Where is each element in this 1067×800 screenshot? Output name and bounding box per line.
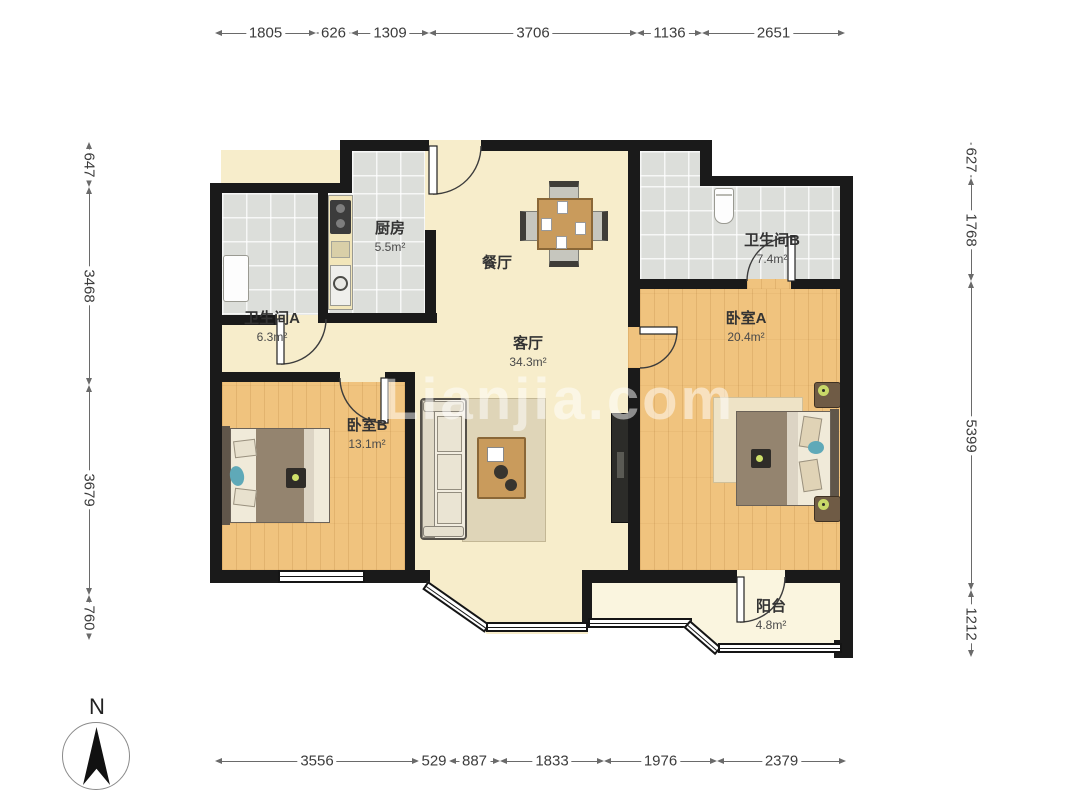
arrow-right-icon — [422, 30, 429, 36]
arrow-right-icon — [597, 758, 604, 764]
wall-segment — [628, 368, 640, 570]
arrow-left-icon — [215, 30, 222, 36]
bed-b-pillow — [233, 439, 257, 459]
arrow-right-icon — [695, 30, 702, 36]
arrow-right-icon — [838, 30, 845, 36]
arrow-left-icon — [702, 30, 709, 36]
bathroom-b-door-threshold — [747, 279, 791, 289]
wall-segment — [700, 176, 853, 186]
dining-chair — [520, 211, 538, 241]
sofa-armrest — [423, 401, 464, 412]
wall-segment — [628, 279, 747, 289]
room-label-bedroom-b: 卧室B 13.1m² — [347, 415, 388, 453]
kitchen-shelf — [331, 241, 350, 258]
bed-a-tray-lamp — [756, 455, 763, 462]
arrow-up-icon — [86, 187, 92, 194]
coffee-table-tray — [487, 447, 504, 462]
room-name: 卫生间A — [244, 308, 300, 329]
room-label-kitchen: 厨房 5.5m² — [375, 218, 406, 256]
room-area: 6.3m² — [244, 329, 300, 346]
dimension: 1136 — [637, 24, 702, 42]
dimension: 626 — [316, 24, 351, 42]
arrow-left-icon — [717, 758, 724, 764]
wall-segment — [785, 570, 853, 583]
wall-segment — [405, 372, 415, 583]
arrow-right-icon — [309, 30, 316, 36]
arrow-up-icon — [968, 178, 974, 185]
arrow-down-icon — [86, 633, 92, 640]
bedroom-a-door-threshold — [628, 327, 640, 368]
entry-threshold-floor — [429, 140, 481, 152]
wall-segment — [340, 140, 429, 151]
room-label-balcony: 阳台 4.8m² — [756, 596, 787, 634]
wall-segment — [318, 313, 437, 323]
sofa-cushion — [437, 454, 462, 490]
dimension: 5399 — [962, 281, 980, 590]
arrow-up-icon — [86, 142, 92, 149]
dining-plate — [557, 201, 568, 214]
arrow-right-icon — [493, 758, 500, 764]
bed-a-cushion — [808, 441, 824, 454]
dimension: 3706 — [429, 24, 637, 42]
dimension: 627 — [962, 142, 980, 178]
compass-north-label: N — [80, 694, 114, 720]
coffee-table-cup — [505, 479, 517, 491]
floor-plan: Lianjia.com 厨房 5.5m² 卫生间A 6.3m² 卫生间B 7.4… — [0, 0, 1067, 800]
wall-segment — [481, 140, 712, 151]
dimension: 1768 — [962, 178, 980, 281]
arrow-down-icon — [968, 274, 974, 281]
dining-chair — [549, 247, 579, 267]
arrow-left-icon — [429, 30, 436, 36]
wall-segment — [425, 230, 436, 323]
sofa-armrest — [423, 526, 464, 537]
arrow-right-icon — [710, 758, 717, 764]
sofa-cushion — [437, 492, 462, 524]
arrow-down-icon — [86, 588, 92, 595]
kitchen-floor — [352, 151, 425, 193]
room-name: 厨房 — [375, 218, 406, 239]
room-label-bedroom-a: 卧室A 20.4m² — [726, 308, 767, 346]
washing-machine — [223, 255, 249, 302]
bed-a-blanket-fold — [787, 412, 798, 505]
dimension: 1309 — [351, 24, 429, 42]
wall-segment — [318, 183, 328, 323]
dimension: 887 — [449, 752, 500, 770]
cooktop-burner — [336, 219, 345, 228]
room-name: 餐厅 — [482, 253, 512, 274]
dimension: 529 — [419, 752, 449, 770]
arrow-down-icon — [86, 378, 92, 385]
room-name: 阳台 — [756, 596, 787, 617]
dimension: 760 — [80, 595, 98, 640]
room-label-living: 客厅 34.3m² — [509, 333, 546, 371]
tv-screen — [617, 452, 624, 478]
room-name: 卧室B — [347, 415, 388, 436]
balcony-floor — [588, 583, 840, 648]
wall-segment — [840, 176, 853, 658]
room-area: 4.8m² — [756, 617, 787, 634]
arrow-left-icon — [351, 30, 358, 36]
room-label-bathroom-b: 卫生间B 7.4m² — [744, 230, 800, 268]
wall-segment — [210, 183, 222, 583]
balcony-window — [588, 618, 692, 628]
kitchen-sink — [333, 276, 348, 291]
room-name: 卫生间B — [744, 230, 800, 251]
arrow-right-icon — [630, 30, 637, 36]
dimension: 3679 — [80, 385, 98, 595]
arrow-left-icon — [500, 758, 507, 764]
bed-a-headboard — [830, 409, 839, 508]
arrow-up-icon — [86, 385, 92, 392]
dining-plate — [575, 222, 586, 235]
room-area: 5.5m² — [375, 239, 406, 256]
dimension: 2651 — [702, 24, 845, 42]
dimension: 1212 — [962, 590, 980, 657]
arrow-up-icon — [968, 281, 974, 288]
arrow-down-icon — [968, 650, 974, 657]
room-label-dining: 餐厅 — [482, 253, 512, 274]
toilet-tank — [716, 194, 732, 196]
arrow-left-icon — [604, 758, 611, 764]
room-area: 20.4m² — [726, 329, 767, 346]
arrow-left-icon — [215, 758, 222, 764]
bed-b-pillow — [233, 488, 257, 508]
dimension: 3468 — [80, 187, 98, 385]
coffee-table-cup — [494, 465, 508, 479]
balcony-window — [718, 643, 842, 653]
arrow-left-icon — [449, 758, 456, 764]
room-name: 卧室A — [726, 308, 767, 329]
arrow-down-icon — [86, 180, 92, 187]
cooktop-burner — [336, 204, 345, 213]
dimension: 2379 — [717, 752, 846, 770]
nightstand-lamp — [818, 499, 829, 510]
dining-plate — [556, 236, 567, 249]
sofa-cushion — [437, 416, 462, 452]
room-name: 客厅 — [509, 333, 546, 354]
arrow-right-icon — [839, 758, 846, 764]
dining-plate — [541, 218, 552, 231]
dimension: 1976 — [604, 752, 717, 770]
arrow-down-icon — [968, 583, 974, 590]
arrow-left-icon — [637, 30, 644, 36]
bathroom-b-floor — [640, 186, 840, 279]
wall-segment — [791, 279, 845, 289]
bay-window — [486, 622, 588, 632]
arrow-up-icon — [86, 595, 92, 602]
nightstand-lamp — [818, 385, 829, 396]
wall-segment — [588, 570, 737, 583]
wall-segment — [210, 372, 340, 382]
balcony-door-threshold — [737, 570, 785, 583]
arrow-up-icon — [968, 590, 974, 597]
wall-segment — [210, 183, 352, 193]
sofa-backrest — [422, 400, 435, 538]
dimension: 1805 — [215, 24, 316, 42]
bedroom-b-window — [278, 570, 365, 583]
dimension: 647 — [80, 142, 98, 187]
room-label-bathroom-a: 卫生间A 6.3m² — [244, 308, 300, 346]
bed-b-tray-lamp — [292, 474, 299, 481]
room-area: 13.1m² — [347, 436, 388, 453]
room-area: 34.3m² — [509, 354, 546, 371]
wall-segment — [628, 151, 640, 327]
dimension: 3556 — [215, 752, 419, 770]
dimension: 1833 — [500, 752, 604, 770]
room-area: 7.4m² — [744, 251, 800, 268]
